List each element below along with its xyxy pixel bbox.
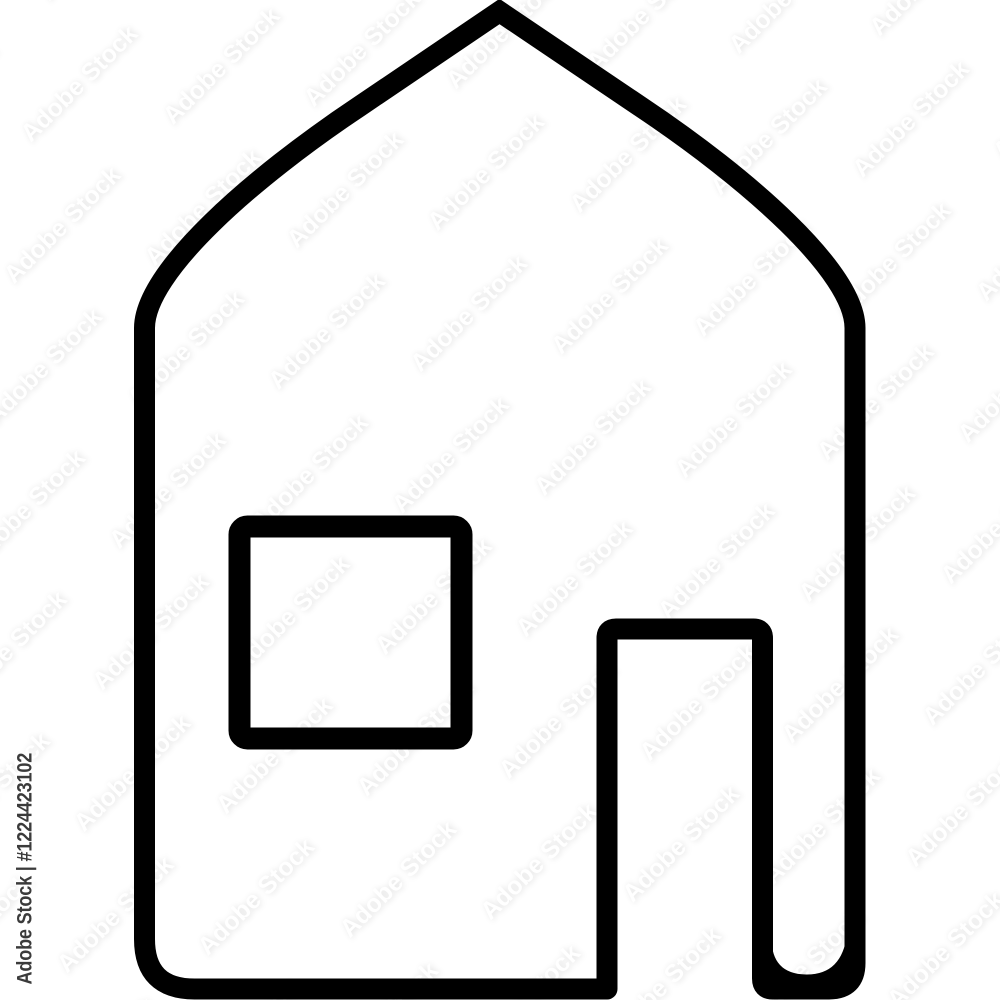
svg-text:Adobe Stock | #1224423102: Adobe Stock | #1224423102 <box>13 753 37 985</box>
